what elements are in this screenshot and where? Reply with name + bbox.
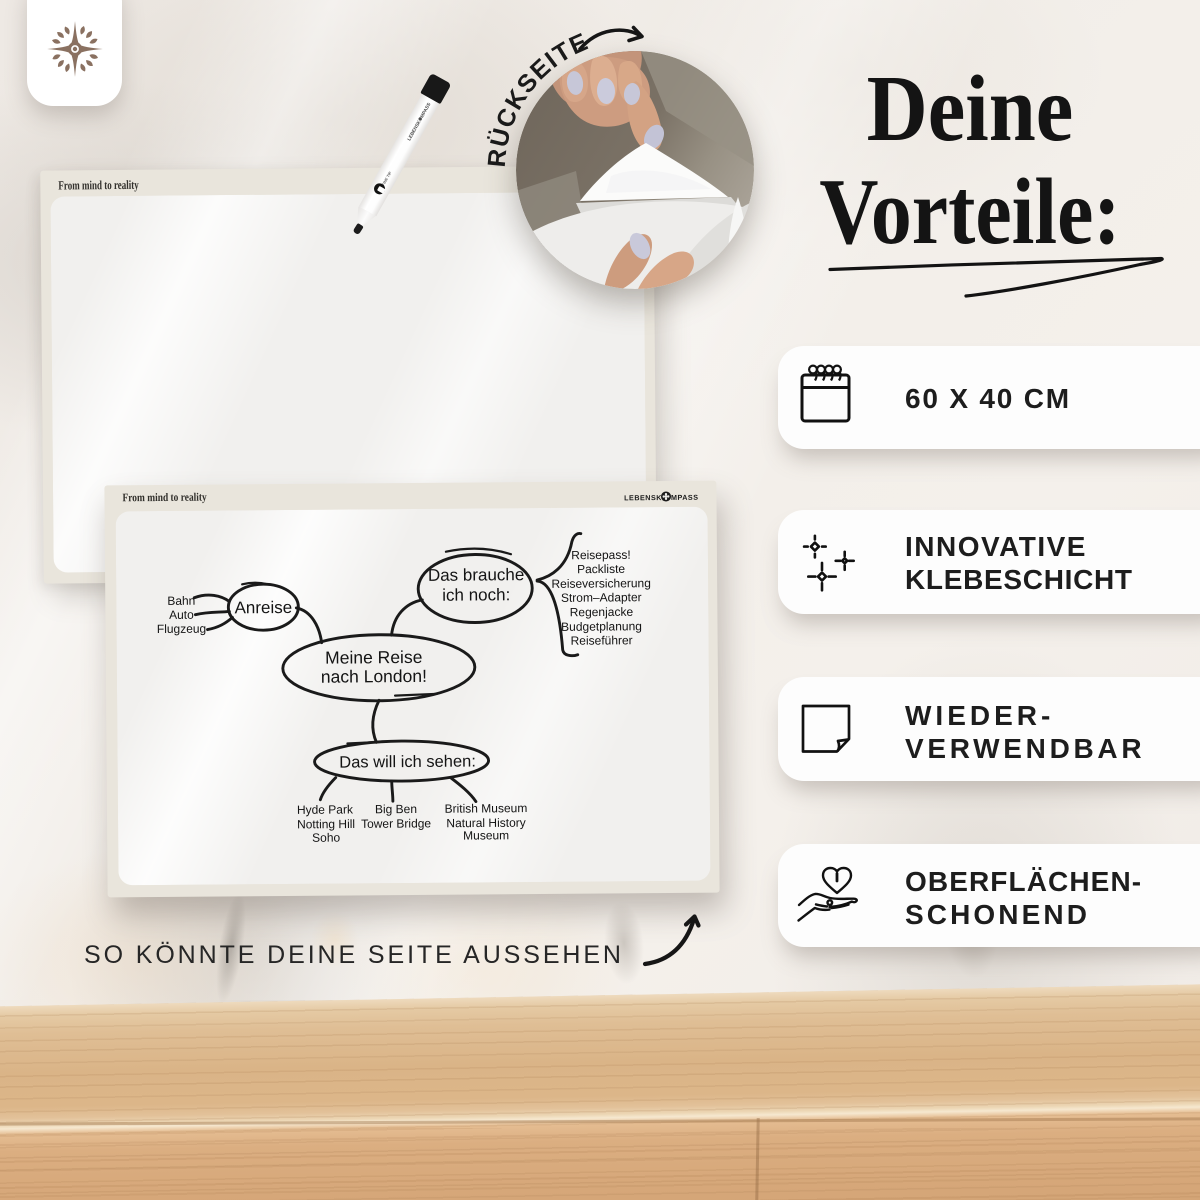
svg-text:Reiseversicherung: Reiseversicherung — [551, 576, 650, 591]
svg-text:Bahn: Bahn — [167, 594, 195, 608]
svg-text:Auto: Auto — [169, 608, 194, 622]
svg-text:Museum: Museum — [463, 828, 509, 842]
svg-text:Big Ben: Big Ben — [375, 802, 417, 816]
svg-text:British Museum: British Museum — [445, 801, 528, 816]
svg-text:Flugzeug: Flugzeug — [157, 622, 206, 636]
svg-text:Das will ich sehen:: Das will ich sehen: — [339, 753, 476, 772]
svg-text:Reiseführer: Reiseführer — [571, 633, 633, 647]
svg-text:Das brauche: Das brauche — [428, 565, 525, 585]
svg-text:Regenjacke: Regenjacke — [570, 605, 634, 619]
svg-text:Notting Hill: Notting Hill — [297, 817, 355, 831]
svg-text:Hyde Park: Hyde Park — [297, 802, 354, 816]
svg-text:Tower Bridge: Tower Bridge — [361, 816, 431, 831]
svg-text:nach London!: nach London! — [321, 666, 427, 687]
svg-text:Budgetplanung: Budgetplanung — [561, 619, 642, 634]
svg-text:Soho: Soho — [312, 831, 340, 845]
svg-text:Meine Reise: Meine Reise — [325, 647, 422, 668]
svg-text:Packliste: Packliste — [577, 562, 625, 576]
svg-text:ich noch:: ich noch: — [442, 585, 510, 605]
svg-text:Reisepass!: Reisepass! — [571, 548, 630, 562]
svg-text:RÜCKSEITE: RÜCKSEITE — [483, 27, 593, 168]
svg-text:Anreise: Anreise — [234, 598, 292, 617]
svg-text:Strom–Adapter: Strom–Adapter — [561, 590, 642, 605]
